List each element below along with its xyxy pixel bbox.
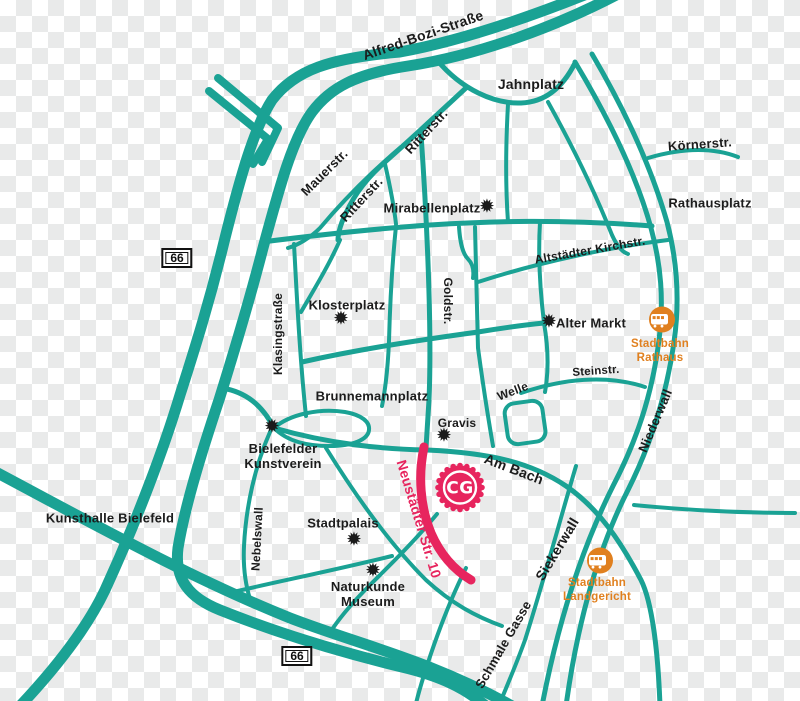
road-jahnplatz-southeast (548, 102, 628, 254)
road-steinstr (521, 379, 645, 393)
label-alter-markt: Alter Markt (556, 317, 626, 332)
stadtbahn-landgericht-stop (586, 547, 614, 580)
label-stadtpalais: Stadtpalais (307, 517, 379, 532)
label-kunstverein-line2: Kunstverein (244, 456, 321, 471)
stadtbahn-landgericht-line1: Stadtbahn (568, 577, 626, 589)
label-goldstr: Goldstr. (440, 278, 454, 325)
poi-marker-gravis: ✹ (436, 427, 452, 446)
poi-marker-alter-markt: ✹ (541, 313, 557, 332)
road-welle-street (475, 227, 493, 446)
tram-icon (648, 306, 676, 334)
poi-marker-klosterplatz: ✹ (333, 310, 349, 329)
road-altermarkt-south (544, 323, 548, 392)
stadtbahn-landgericht-line2: Landgericht (563, 591, 631, 603)
label-mirabellenplatz: Mirabellenplatz (384, 202, 481, 217)
road-klasingstrasse (294, 244, 306, 416)
road-ramp-2 (209, 91, 268, 164)
label-naturkunde-museum: Naturkunde Museum (331, 580, 405, 610)
label-stadtbahn-rathaus: Stadtbahn Rathaus (631, 338, 689, 366)
road-center-vertical (382, 226, 396, 406)
tram-icon (586, 547, 614, 575)
label-klasingstrasse: Klasingstraße (272, 293, 286, 375)
label-kunsthalle-bielefeld: Kunsthalle Bielefeld (46, 512, 174, 527)
stadtbahn-rathaus-line2: Rathaus (637, 352, 684, 364)
poi-marker-naturkunde: ✹ (365, 562, 381, 581)
road-hook-street (459, 227, 473, 278)
poi-marker-kunstverein: ✹ (264, 418, 280, 437)
road-block-outline (503, 400, 546, 446)
route-shield-66-north: 66 (161, 248, 192, 268)
stadtbahn-rathaus-stop (648, 306, 676, 339)
route-shield-66-south: 66 (281, 646, 312, 666)
road-ritterstr (338, 87, 467, 240)
cg-logo-text: CG (446, 479, 473, 499)
road-east-horizontal (634, 505, 795, 513)
label-bielefelder-kunstverein: Bielefelder Kunstverein (244, 442, 321, 472)
road-altermarkt-vertical (539, 222, 544, 323)
poi-marker-stadtpalais: ✹ (346, 531, 362, 550)
road-jahnplatz-south (506, 104, 508, 222)
label-stadtbahn-landgericht: Stadtbahn Landgericht (563, 577, 631, 605)
label-naturkunde-line2: Museum (341, 594, 395, 609)
stadtbahn-rathaus-line1: Stadtbahn (631, 338, 689, 350)
cg-stamp-icon: CG (432, 460, 488, 516)
label-brunnemannplatz: Brunnemannplatz (316, 390, 429, 405)
cg-logo: CG (432, 460, 488, 521)
poi-marker-mirabellenplatz: ✹ (479, 198, 495, 217)
label-jahnplatz: Jahnplatz (498, 76, 564, 92)
label-kunstverein-line1: Bielefelder (249, 441, 318, 456)
map-canvas: Alfred-Bozi-Straße Jahnplatz Körnerstr. … (0, 0, 800, 701)
label-rathausplatz: Rathausplatz (668, 197, 751, 212)
